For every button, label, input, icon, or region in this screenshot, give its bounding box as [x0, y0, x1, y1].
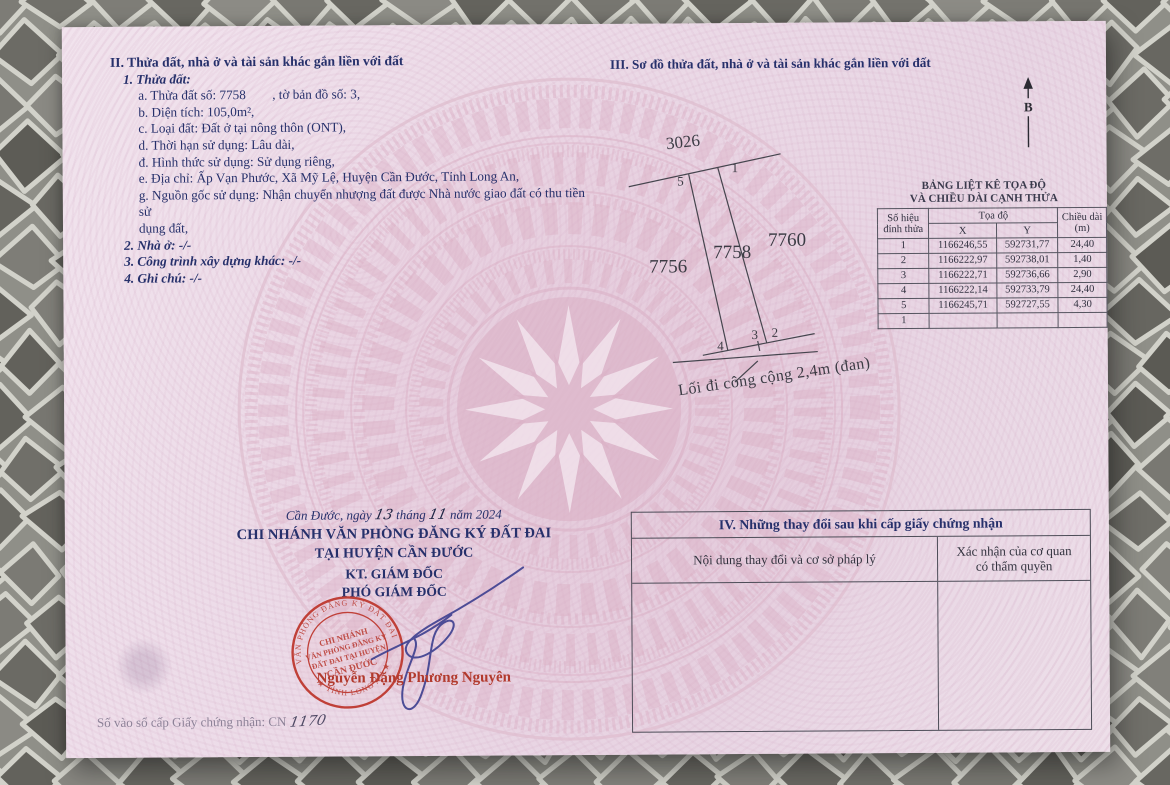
coord-row: 51166245,71 592727,554,30 — [878, 297, 1107, 313]
coord-row: 21166222,97 592738,011,40 — [878, 252, 1107, 268]
col-x: X — [929, 223, 996, 238]
col-change-content: Nội dung thay đổi và cơ sở pháp lý — [632, 537, 938, 583]
photo-scene: II. Thửa đất, nhà ở và tài sản khác gắn … — [0, 0, 1170, 785]
note-line: 4. Ghi chú: -/- — [124, 268, 597, 287]
section-iii-heading: III. Sơ đồ thửa đất, nhà ở và tài sản kh… — [610, 54, 1090, 73]
vertex-3-label: 3 — [751, 327, 758, 342]
parcel-7758-label: 7758 — [713, 242, 751, 263]
coord-row: 31166222,71 592736,662,90 — [878, 267, 1107, 283]
parcel-sketch-diagram: 3026 5 1 7756 7758 7760 4 3 2 Lối đi côn… — [613, 130, 905, 404]
vertex-5-label: 5 — [677, 173, 684, 188]
vertex-2-label: 2 — [772, 325, 779, 340]
registration-line: Số vào sổ cấp Giấy chứng nhận: CN 1170 — [97, 714, 325, 731]
paper-stain — [114, 639, 174, 694]
vertex-4-label: 4 — [717, 338, 724, 353]
col-length: Chiều dài (m) — [1058, 207, 1107, 237]
public-path-label: Lối đi công cộng 2,4m (đan) — [677, 354, 871, 399]
land-certificate-page: II. Thửa đất, nhà ở và tài sản khác gắn … — [62, 21, 1110, 758]
handwritten-month: 11 — [427, 507, 448, 523]
adjacent-parcel-top-label: 3026 — [665, 131, 701, 154]
section-iv-table: IV. Những thay đổi sau khi cấp giấy chứn… — [631, 509, 1092, 733]
section-iv-title: IV. Những thay đổi sau khi cấp giấy chứn… — [632, 510, 1090, 539]
handwritten-day: 13 — [373, 507, 394, 523]
registration-label: Số vào sổ cấp Giấy chứng nhận: CN — [97, 714, 286, 730]
col-coords: Tọa độ — [929, 208, 1058, 224]
coord-row: 41166222,14 592733,7924,40 — [878, 282, 1107, 298]
vertex-1-label: 1 — [732, 160, 739, 175]
parcel-7756-label: 7756 — [649, 256, 687, 277]
coord-row: 11166246,55 592731,7724,40 — [878, 237, 1107, 253]
north-arrow-icon: B — [1018, 77, 1038, 151]
parcel-7760-label: 7760 — [768, 230, 806, 251]
north-label: B — [1024, 99, 1033, 114]
place-date-line: Cần Đước, ngày 13 tháng 11 năm 2024 — [224, 506, 564, 524]
origin-line: g. Nguồn gốc sử dụng: Nhận chuyển nhượng… — [139, 185, 597, 221]
section-iv-header-row: Nội dung thay đổi và cơ sở pháp lý Xác n… — [632, 536, 1090, 584]
section-iv-empty-body — [632, 581, 1091, 732]
ink-signature — [301, 540, 602, 742]
col-authority-confirm: Xác nhận của cơ quan có thẩm quyền — [938, 536, 1090, 581]
section-ii-block: II. Thửa đất, nhà ở và tài sản khác gắn … — [110, 52, 597, 287]
coord-table: Số hiệu đỉnh thửa Tọa độ Chiều dài (m) X… — [877, 207, 1108, 329]
coord-row: 1 — [878, 312, 1107, 328]
col-y: Y — [996, 223, 1058, 238]
signer-name: Nguyễn Đặng Phương Nguyên — [304, 669, 524, 687]
